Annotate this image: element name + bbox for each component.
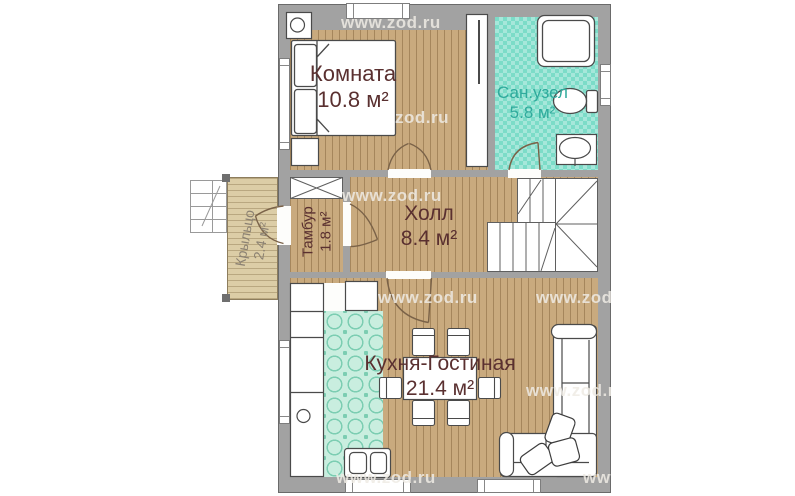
nightstand-top [287,13,312,39]
floor-plan: Комната 10.8 м² Сан.узел 5.8 м² Холл 8.4… [0,0,795,496]
bathroom-name: Сан.узел [480,83,585,103]
porch-post-top [222,174,230,182]
bathroom-door-arc [509,143,540,171]
hall-name: Холл [369,202,489,227]
porch-post-bottom [222,294,230,302]
porch-steps [190,181,227,233]
stove [345,449,391,478]
bathroom-label: Сан.узел 5.8 м² [480,83,585,123]
bathroom-area: 5.8 м² [480,103,585,123]
kitchen-living-label: Кухня-Гостиная 21.4 м² [349,352,531,402]
winder-stairs [488,179,598,272]
hall-label: Холл 8.4 м² [369,202,489,252]
bedroom-area: 10.8 м² [288,87,418,113]
nightstand-bottom [292,139,319,166]
bedroom-name: Комната [288,61,418,87]
kitchen-living-name: Кухня-Гостиная [349,352,531,377]
shower [538,16,595,67]
bathroom-sink [557,135,597,167]
kitchen-door-arc [387,278,432,323]
tambour-label: Тамбур 1.8 м² [299,192,334,272]
kitchen-counter [291,284,324,477]
fridge [346,282,378,311]
kitchen-living-area: 21.4 м² [349,377,531,402]
tambour-area: 1.8 м² [317,192,335,272]
bedroom-label: Комната 10.8 м² [288,61,418,113]
tambour-name: Тамбур [299,192,317,272]
hall-area: 8.4 м² [369,227,489,252]
bedroom-door-arc [388,144,431,171]
